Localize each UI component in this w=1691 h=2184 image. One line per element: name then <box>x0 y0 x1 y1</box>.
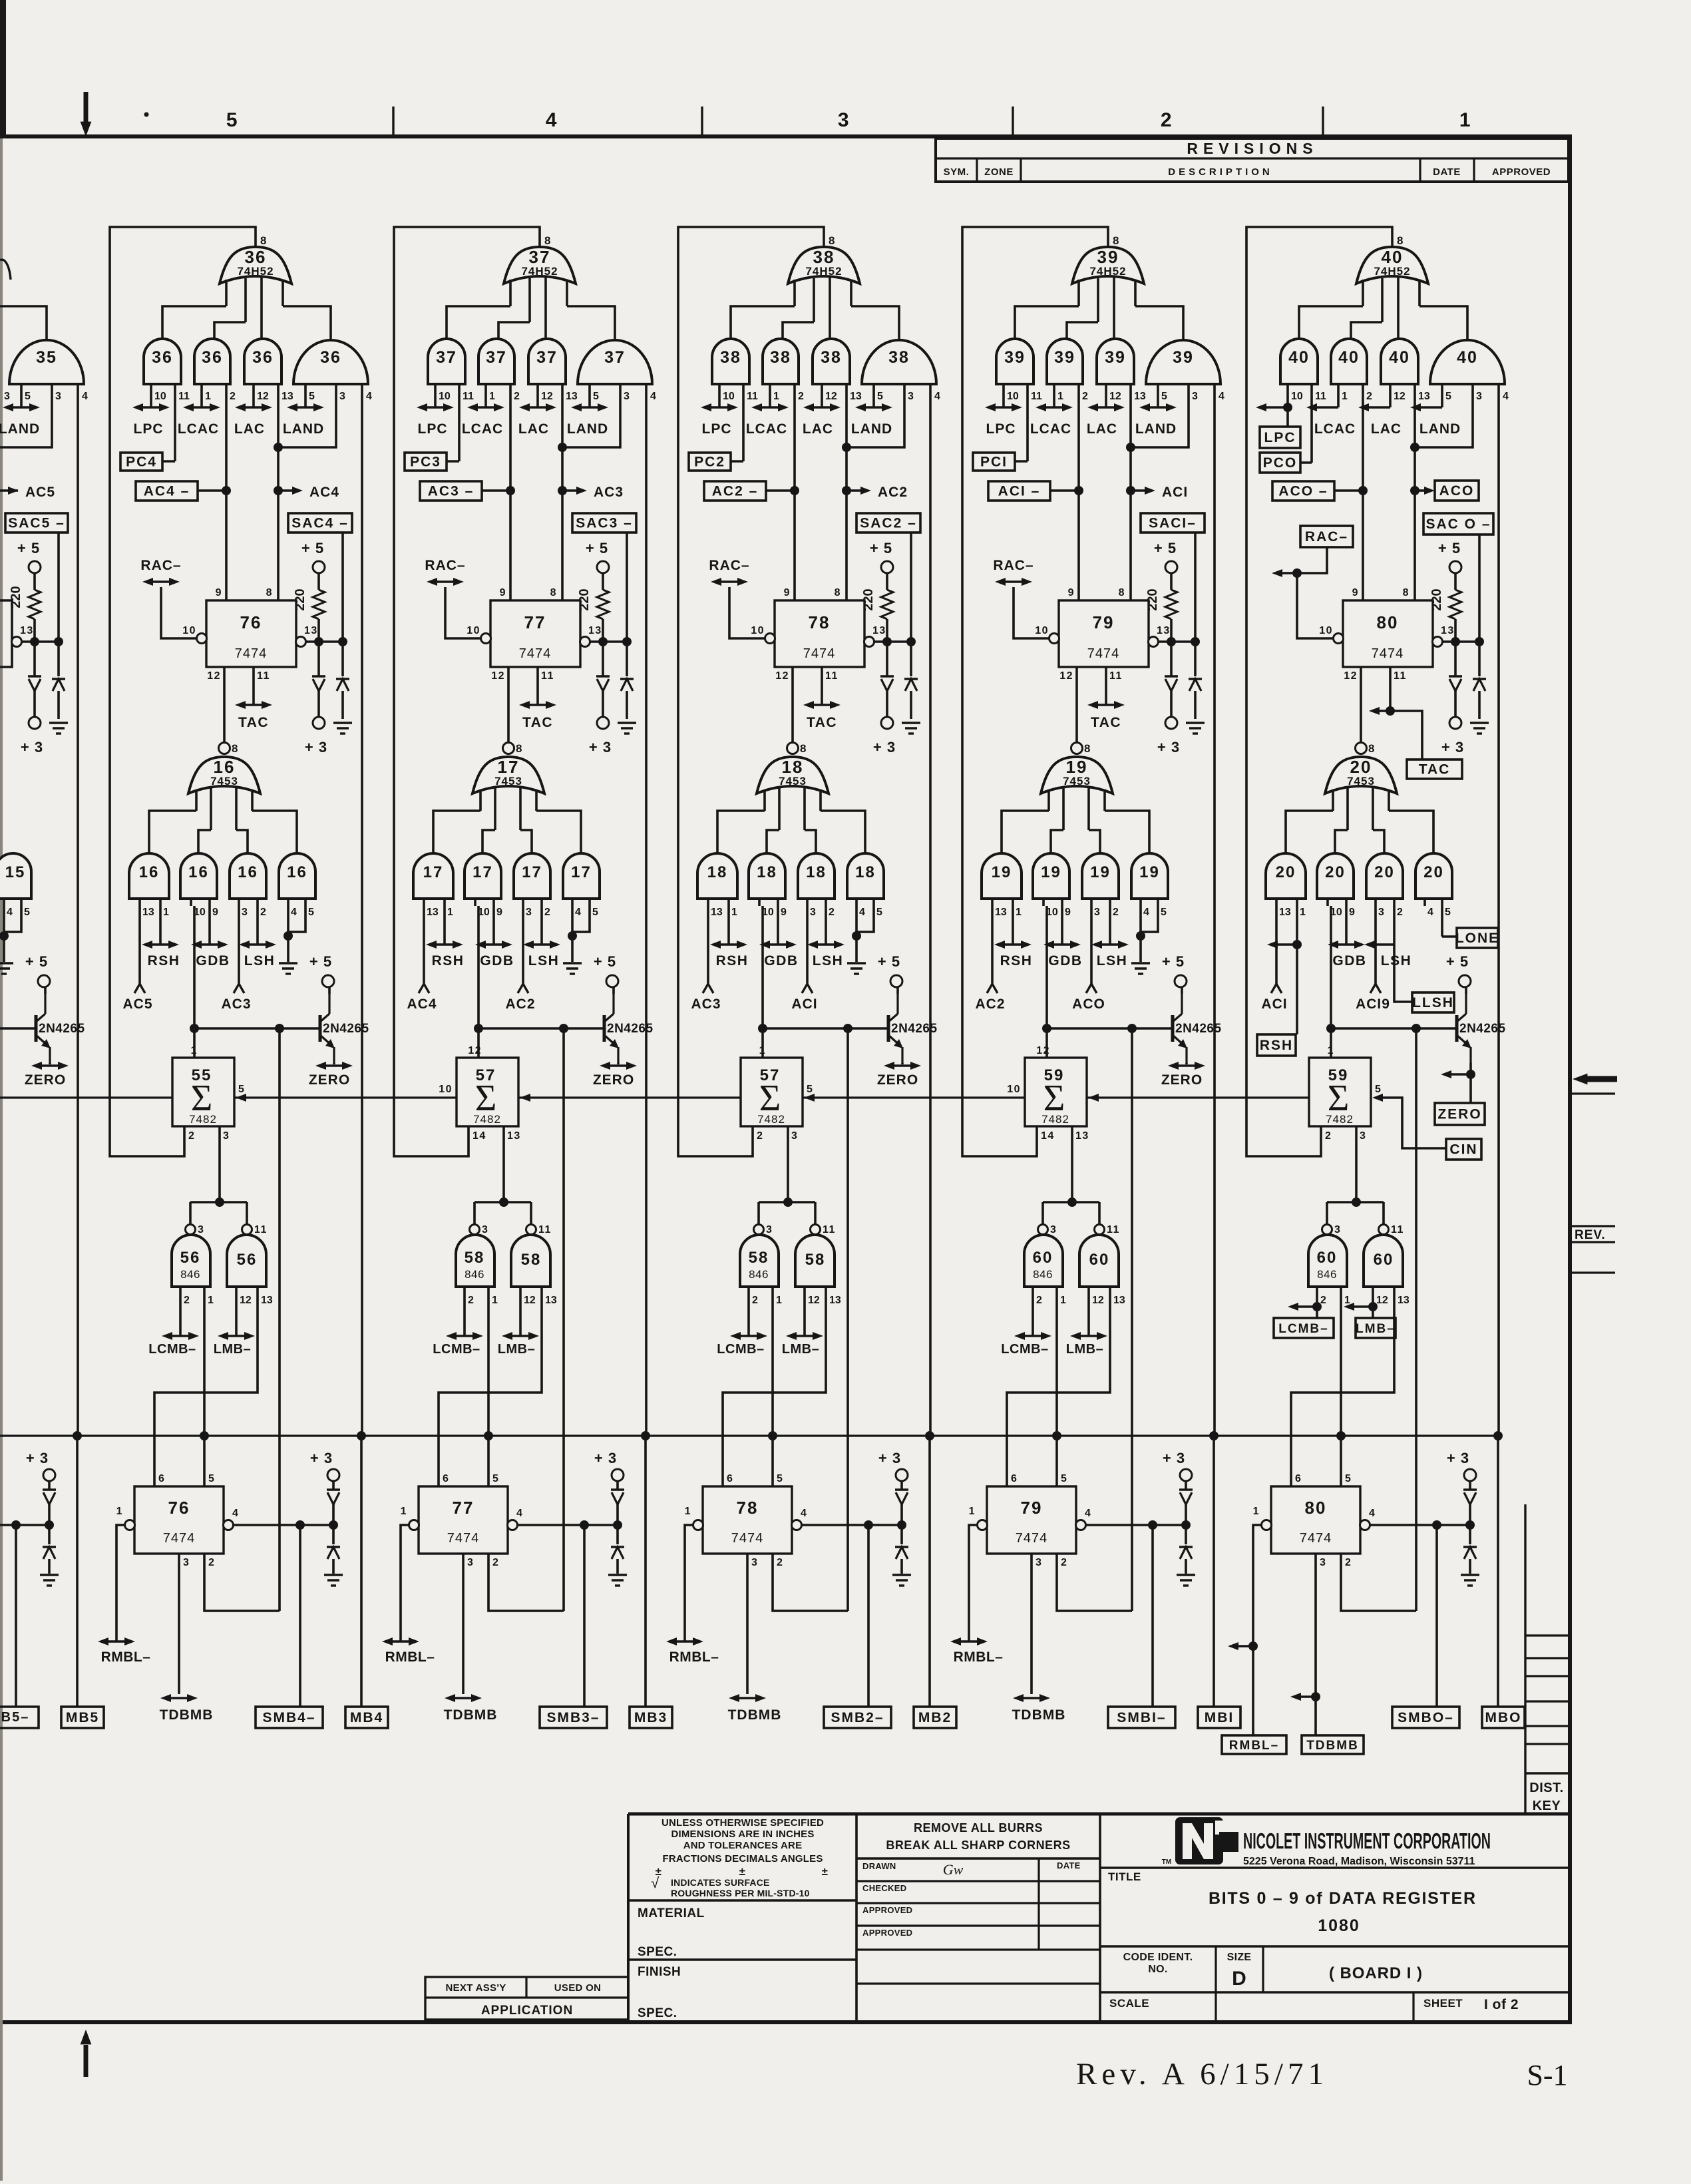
svg-text:+ 3: + 3 <box>26 1450 49 1466</box>
svg-text:5: 5 <box>876 907 882 918</box>
svg-text:11: 11 <box>257 670 270 682</box>
svg-text:11: 11 <box>1107 1224 1120 1235</box>
svg-text:8: 8 <box>1119 587 1125 598</box>
svg-text:10: 10 <box>1291 391 1303 402</box>
svg-text:3: 3 <box>624 391 630 402</box>
svg-text:AC2 –: AC2 – <box>712 484 759 499</box>
svg-text:9: 9 <box>1349 907 1355 918</box>
svg-text:16: 16 <box>214 757 236 777</box>
svg-text:3: 3 <box>526 907 532 918</box>
svg-text:11: 11 <box>1391 1224 1404 1235</box>
svg-text:36: 36 <box>252 348 274 367</box>
svg-text:AC2: AC2 <box>505 996 535 1012</box>
svg-text:5: 5 <box>238 1084 245 1095</box>
svg-text:4: 4 <box>546 109 558 131</box>
svg-text:7474: 7474 <box>803 646 836 661</box>
svg-text:SAC2 –: SAC2 – <box>860 516 917 531</box>
svg-text:16: 16 <box>139 863 160 881</box>
svg-text:6: 6 <box>727 1473 733 1484</box>
svg-text:+ 5: + 5 <box>870 540 892 556</box>
svg-text:6: 6 <box>443 1473 449 1484</box>
svg-text:4: 4 <box>291 907 297 918</box>
svg-text:5: 5 <box>308 907 314 918</box>
svg-text:2: 2 <box>468 1295 474 1306</box>
svg-text:5: 5 <box>1061 1473 1067 1484</box>
svg-text:56: 56 <box>237 1251 258 1269</box>
svg-text:LAC: LAC <box>234 421 265 437</box>
svg-text:MB4: MB4 <box>350 1710 383 1725</box>
svg-text:5: 5 <box>1445 907 1451 918</box>
svg-text:35: 35 <box>36 348 57 367</box>
svg-text:ZERO: ZERO <box>25 1072 66 1088</box>
svg-text:56: 56 <box>180 1249 201 1267</box>
svg-text:3: 3 <box>810 907 816 918</box>
svg-text:AND TOLERANCES ARE: AND TOLERANCES ARE <box>683 1840 803 1851</box>
svg-text:RSH: RSH <box>148 953 180 969</box>
svg-text:11: 11 <box>254 1224 268 1235</box>
svg-text:5: 5 <box>1161 391 1167 402</box>
svg-text:AC4: AC4 <box>407 996 437 1012</box>
svg-text:58: 58 <box>521 1251 542 1269</box>
svg-text:ZERO: ZERO <box>1437 1107 1481 1122</box>
svg-text:13: 13 <box>1113 1295 1125 1306</box>
svg-text:5: 5 <box>309 391 315 402</box>
svg-text:INDICATES SURFACE: INDICATES SURFACE <box>671 1877 770 1888</box>
svg-text:RAC–: RAC– <box>1305 529 1348 545</box>
svg-text:AC4: AC4 <box>309 485 339 500</box>
svg-text:RSH: RSH <box>432 953 465 969</box>
svg-text:17: 17 <box>472 863 493 881</box>
svg-text:36: 36 <box>152 348 173 367</box>
svg-text:4: 4 <box>650 391 656 402</box>
svg-text:3: 3 <box>198 1224 204 1235</box>
svg-text:846: 846 <box>465 1268 484 1281</box>
svg-text:2: 2 <box>230 391 236 402</box>
svg-text:ZONE: ZONE <box>984 166 1014 178</box>
svg-text:5: 5 <box>1345 1473 1352 1484</box>
svg-text:LAND: LAND <box>1135 421 1177 437</box>
svg-text:SMB2–: SMB2– <box>831 1710 884 1725</box>
svg-text:LSH: LSH <box>1381 953 1412 969</box>
svg-text:RSH: RSH <box>1000 953 1033 969</box>
svg-text:74H52: 74H52 <box>237 265 274 278</box>
svg-text:16: 16 <box>188 863 209 881</box>
svg-text:5: 5 <box>25 391 31 402</box>
svg-text:√: √ <box>651 1874 660 1891</box>
svg-text:1: 1 <box>191 1045 198 1056</box>
svg-text:DIST.: DIST. <box>1529 1781 1563 1795</box>
svg-text:4: 4 <box>1143 907 1149 918</box>
svg-text:58: 58 <box>805 1251 826 1269</box>
svg-text:2: 2 <box>1345 1557 1352 1568</box>
svg-text:9: 9 <box>500 587 506 598</box>
svg-text:12: 12 <box>1109 391 1121 402</box>
svg-text:11: 11 <box>541 670 554 682</box>
svg-text:SMBI–: SMBI– <box>1117 1710 1166 1725</box>
svg-text:LCAC: LCAC <box>1314 421 1356 437</box>
svg-text:+ 5: + 5 <box>309 953 332 970</box>
svg-text:9: 9 <box>496 907 502 918</box>
svg-text:2: 2 <box>544 907 550 918</box>
svg-text:4: 4 <box>934 391 940 402</box>
svg-text:9: 9 <box>1068 587 1075 598</box>
svg-text:7474: 7474 <box>519 646 552 661</box>
svg-text:10: 10 <box>1007 1084 1021 1095</box>
svg-text:9: 9 <box>784 587 791 598</box>
svg-text:±: ± <box>739 1865 747 1878</box>
svg-text:4: 4 <box>366 391 372 402</box>
svg-text:7474: 7474 <box>731 1531 764 1546</box>
svg-text:2: 2 <box>757 1130 763 1142</box>
svg-text:11: 11 <box>823 1224 836 1235</box>
svg-text:11: 11 <box>178 391 190 402</box>
svg-text:7453: 7453 <box>210 775 238 787</box>
svg-text:GDB: GDB <box>764 953 798 969</box>
svg-text:846: 846 <box>1033 1268 1053 1281</box>
svg-text:+ 5: + 5 <box>1438 540 1461 556</box>
svg-text:4: 4 <box>1427 907 1433 918</box>
svg-text:8: 8 <box>1084 742 1091 755</box>
svg-text:13: 13 <box>1441 625 1455 636</box>
svg-text:5: 5 <box>877 391 883 402</box>
svg-text:2: 2 <box>1366 391 1372 402</box>
svg-text:ACI: ACI <box>1261 996 1287 1012</box>
svg-text:SMB4–: SMB4– <box>262 1710 315 1725</box>
svg-text:TDBMB: TDBMB <box>1012 1707 1066 1723</box>
svg-text:PCI: PCI <box>980 455 1008 470</box>
svg-text:ZERO: ZERO <box>877 1072 918 1088</box>
svg-text:79: 79 <box>1021 1498 1043 1518</box>
svg-text:8: 8 <box>835 587 841 598</box>
svg-text:RAC–: RAC– <box>709 558 749 573</box>
svg-text:LLSH: LLSH <box>1412 995 1454 1010</box>
svg-text:SIZE: SIZE <box>1227 1952 1252 1963</box>
svg-text:TDBMB: TDBMB <box>444 1707 498 1723</box>
svg-text:13: 13 <box>1279 907 1291 918</box>
svg-text:+ 5: + 5 <box>878 953 900 970</box>
svg-text:3: 3 <box>467 1557 474 1568</box>
svg-text:5: 5 <box>492 1473 499 1484</box>
svg-text:3: 3 <box>55 391 61 402</box>
svg-text:+ 3: + 3 <box>594 1450 617 1466</box>
svg-text:SAC O –: SAC O – <box>1425 517 1491 532</box>
svg-text:+ 5: + 5 <box>586 540 608 556</box>
svg-text:13: 13 <box>1157 625 1171 636</box>
svg-text:13: 13 <box>427 907 439 918</box>
svg-text:13: 13 <box>1418 391 1430 402</box>
svg-text:5: 5 <box>777 1473 783 1484</box>
svg-text:1: 1 <box>1300 907 1306 918</box>
svg-text:TITLE: TITLE <box>1108 1870 1141 1883</box>
svg-text:13: 13 <box>1398 1295 1409 1306</box>
svg-text:74H52: 74H52 <box>521 265 558 278</box>
svg-text:77: 77 <box>453 1498 474 1518</box>
svg-text:I of 2: I of 2 <box>1484 1997 1519 2012</box>
svg-text:RAC–: RAC– <box>140 558 181 573</box>
svg-text:3: 3 <box>766 1224 773 1235</box>
svg-text:7482: 7482 <box>189 1113 217 1126</box>
svg-text:13: 13 <box>995 907 1007 918</box>
svg-text:CIN: CIN <box>1449 1142 1477 1158</box>
svg-text:19: 19 <box>1041 863 1061 881</box>
svg-text:+ 3: + 3 <box>21 739 43 756</box>
svg-text:DESCRIPTION: DESCRIPTION <box>1168 166 1273 178</box>
svg-text:1: 1 <box>773 391 779 402</box>
svg-text:CHECKED: CHECKED <box>862 1883 906 1893</box>
svg-text:4: 4 <box>1085 1508 1091 1519</box>
svg-text:20: 20 <box>1325 863 1346 881</box>
svg-text:13: 13 <box>1134 391 1146 402</box>
svg-text:37: 37 <box>604 348 626 367</box>
svg-text:4: 4 <box>232 1508 239 1519</box>
svg-text:PC3: PC3 <box>410 455 441 470</box>
svg-text:ACI: ACI <box>1162 485 1188 500</box>
svg-text:TAC: TAC <box>807 715 837 730</box>
svg-text:3: 3 <box>1094 907 1100 918</box>
svg-text:40: 40 <box>1338 348 1360 367</box>
svg-text:RSH: RSH <box>1260 1038 1293 1053</box>
svg-text:MBI: MBI <box>1205 1710 1234 1725</box>
svg-text:RMBL–: RMBL– <box>101 1649 151 1665</box>
svg-text:4: 4 <box>1219 391 1224 402</box>
svg-text:7474: 7474 <box>447 1531 480 1546</box>
svg-text:1: 1 <box>1016 907 1022 918</box>
svg-text:APPLICATION: APPLICATION <box>481 2004 573 2018</box>
svg-text:LCAC: LCAC <box>746 421 787 437</box>
svg-text:2: 2 <box>208 1557 215 1568</box>
svg-text:+ 5: + 5 <box>301 540 324 556</box>
svg-text:39: 39 <box>1105 348 1126 367</box>
svg-text:2: 2 <box>1113 907 1119 918</box>
svg-text:LMB–: LMB– <box>214 1342 251 1357</box>
svg-text:UNLESS OTHERWISE SPECIFIED: UNLESS OTHERWISE SPECIFIED <box>661 1817 824 1829</box>
svg-text:D: D <box>1232 1968 1246 1990</box>
svg-text:846: 846 <box>1317 1268 1337 1281</box>
svg-text:NICOLET INSTRUMENT CORPORATION: NICOLET INSTRUMENT CORPORATION <box>1243 1829 1491 1853</box>
svg-text:ZERO: ZERO <box>1161 1072 1203 1088</box>
svg-text:13: 13 <box>20 625 34 636</box>
svg-text:PC2: PC2 <box>694 455 725 470</box>
svg-text:8: 8 <box>550 587 557 598</box>
svg-text:1: 1 <box>1253 1506 1260 1517</box>
svg-text:+ 3: + 3 <box>305 739 327 756</box>
svg-text:AC2: AC2 <box>878 485 908 500</box>
svg-text:19: 19 <box>1066 757 1088 777</box>
svg-text:8: 8 <box>800 742 807 755</box>
svg-text:1: 1 <box>1060 1295 1066 1306</box>
svg-text:17: 17 <box>571 863 592 881</box>
svg-text:SHEET: SHEET <box>1423 1997 1463 2010</box>
svg-text:AC2: AC2 <box>975 996 1005 1012</box>
svg-text:+ 3: + 3 <box>310 1450 333 1466</box>
svg-text:2: 2 <box>1061 1557 1067 1568</box>
svg-text:38: 38 <box>720 348 741 367</box>
svg-text:LAND: LAND <box>567 421 608 437</box>
svg-text:1: 1 <box>163 907 169 918</box>
svg-text:2: 2 <box>1397 907 1403 918</box>
svg-text:+ 5: + 5 <box>594 953 616 970</box>
svg-text:19: 19 <box>992 863 1012 881</box>
svg-text:LAC: LAC <box>518 421 549 437</box>
svg-text:+ 5: + 5 <box>25 953 48 970</box>
svg-text:±: ± <box>822 1865 829 1878</box>
svg-text:3: 3 <box>339 391 345 402</box>
svg-text:RMBL–: RMBL– <box>385 1649 435 1665</box>
svg-text:14: 14 <box>1041 1130 1055 1142</box>
svg-text:TAC: TAC <box>238 715 269 730</box>
svg-text:12: 12 <box>207 670 221 682</box>
svg-text:ACO: ACO <box>1439 483 1475 499</box>
svg-text:LCAC: LCAC <box>1030 421 1071 437</box>
svg-text:SACI–: SACI– <box>1149 516 1197 531</box>
svg-text:KEY: KEY <box>1533 1799 1561 1813</box>
svg-text:+ 3: + 3 <box>873 739 896 756</box>
svg-text:LAC: LAC <box>1371 421 1402 437</box>
svg-text:5: 5 <box>1161 907 1167 918</box>
svg-text:7453: 7453 <box>1347 775 1375 787</box>
svg-text:37: 37 <box>529 247 551 267</box>
svg-text:3: 3 <box>1050 1224 1057 1235</box>
svg-text:12: 12 <box>1344 670 1358 682</box>
svg-text:RSH: RSH <box>716 953 749 969</box>
svg-text:17: 17 <box>498 757 520 777</box>
svg-text:TDBMB: TDBMB <box>728 1707 782 1723</box>
svg-text:TM: TM <box>1162 1858 1171 1866</box>
svg-text:ROUGHNESS PER MIL-STD-10: ROUGHNESS PER MIL-STD-10 <box>671 1888 810 1898</box>
svg-text:39: 39 <box>1097 247 1119 267</box>
svg-text:10: 10 <box>182 625 196 636</box>
svg-text:60: 60 <box>1317 1249 1338 1267</box>
svg-text:GDB: GDB <box>1332 953 1366 969</box>
svg-text:BITS 0 – 9 of DATA REGIST: BITS 0 – 9 of DATA REGISTER <box>1209 1889 1475 1908</box>
svg-text:LPC: LPC <box>702 421 732 437</box>
svg-text:TAC: TAC <box>522 715 553 730</box>
svg-text:8: 8 <box>1403 587 1409 598</box>
svg-text:13: 13 <box>545 1295 557 1306</box>
svg-text:AC4 –: AC4 – <box>144 484 190 499</box>
svg-text:13: 13 <box>507 1130 521 1142</box>
svg-text:SPEC.: SPEC. <box>638 2006 677 2020</box>
svg-text:LCAC: LCAC <box>462 421 503 437</box>
svg-text:58: 58 <box>465 1249 485 1267</box>
svg-text:MB3: MB3 <box>634 1710 667 1725</box>
svg-text:36: 36 <box>245 247 267 267</box>
svg-text:AC3 –: AC3 – <box>428 484 474 499</box>
svg-text:+ 3: + 3 <box>589 739 612 756</box>
svg-text:12: 12 <box>491 670 505 682</box>
svg-text:2: 2 <box>798 391 804 402</box>
svg-text:8: 8 <box>544 234 550 247</box>
svg-text:9: 9 <box>212 907 218 918</box>
svg-text:LPC: LPC <box>418 421 448 437</box>
svg-text:LAND: LAND <box>283 421 324 437</box>
svg-text:LAC: LAC <box>1087 421 1117 437</box>
svg-text:DIMENSIONS ARE IN INCHES: DIMENSIONS ARE IN INCHES <box>671 1829 814 1840</box>
svg-text:12: 12 <box>1036 1045 1050 1056</box>
svg-text:LMB–: LMB– <box>1356 1322 1396 1336</box>
svg-text:+ 5: + 5 <box>1446 953 1469 970</box>
svg-text:MB2: MB2 <box>918 1710 952 1725</box>
svg-text:+ 5: + 5 <box>1162 953 1185 970</box>
svg-text:LCAC: LCAC <box>178 421 219 437</box>
svg-text:18: 18 <box>707 863 728 881</box>
svg-text:58: 58 <box>749 1249 769 1267</box>
svg-text:12: 12 <box>541 391 553 402</box>
svg-text:11: 11 <box>1315 391 1326 402</box>
svg-text:LAND: LAND <box>1419 421 1461 437</box>
svg-text:SAC4 –: SAC4 – <box>291 516 349 531</box>
svg-text:11: 11 <box>1394 670 1407 682</box>
svg-text:LAND: LAND <box>0 421 40 437</box>
svg-text:+ 3: + 3 <box>1441 739 1464 756</box>
svg-text:S-1: S-1 <box>1527 2059 1567 2091</box>
svg-text:8: 8 <box>260 234 266 247</box>
svg-text:SPEC.: SPEC. <box>638 1945 677 1959</box>
svg-text:1: 1 <box>1057 391 1063 402</box>
svg-text:7474: 7474 <box>1016 1531 1048 1546</box>
svg-text:1: 1 <box>492 1295 498 1306</box>
svg-text:4: 4 <box>1503 391 1509 402</box>
svg-text:8: 8 <box>1368 742 1376 755</box>
svg-text:80: 80 <box>1377 612 1399 632</box>
svg-text:FRACTIONS DECIMALS ANGLES: FRACTIONS DECIMALS ANGLES <box>662 1853 823 1864</box>
svg-text:7482: 7482 <box>757 1113 785 1126</box>
svg-text:4: 4 <box>1369 1508 1376 1519</box>
svg-text:LCMB–: LCMB– <box>717 1342 764 1357</box>
svg-text:GDB: GDB <box>1048 953 1082 969</box>
svg-text:7474: 7474 <box>1087 646 1120 661</box>
svg-text:1080: 1080 <box>1318 1916 1360 1935</box>
svg-text:LMB–: LMB– <box>498 1342 535 1357</box>
svg-text:AC3: AC3 <box>594 485 624 500</box>
svg-text:SMBO–: SMBO– <box>1398 1710 1454 1725</box>
svg-text:+ 3: + 3 <box>1157 739 1180 756</box>
svg-text:7482: 7482 <box>1326 1113 1354 1126</box>
svg-text:3: 3 <box>1360 1130 1366 1142</box>
svg-text:BREAK ALL SHARP CORNERS: BREAK ALL SHARP CORNERS <box>886 1839 1070 1852</box>
svg-text:MB5: MB5 <box>66 1710 99 1725</box>
svg-text:12: 12 <box>775 670 789 682</box>
svg-text:1: 1 <box>1344 1295 1350 1306</box>
svg-text:13: 13 <box>142 907 154 918</box>
svg-text:13: 13 <box>829 1295 841 1306</box>
svg-text:5225 Verona Road, Madison, Wis: 5225 Verona Road, Madison, Wisconsin 537… <box>1243 1856 1475 1867</box>
svg-text:3: 3 <box>791 1130 798 1142</box>
svg-text:18: 18 <box>806 863 827 881</box>
svg-text:LPC: LPC <box>986 421 1016 437</box>
svg-text:8: 8 <box>829 234 835 247</box>
svg-text:2: 2 <box>1325 1130 1332 1142</box>
svg-text:7482: 7482 <box>1041 1113 1069 1126</box>
svg-text:5: 5 <box>1445 391 1451 402</box>
svg-text:38: 38 <box>821 348 842 367</box>
svg-text:11: 11 <box>1031 391 1042 402</box>
svg-text:1: 1 <box>776 1295 782 1306</box>
svg-text:REV.: REV. <box>1575 1228 1606 1242</box>
svg-text:2: 2 <box>514 391 520 402</box>
svg-text:10: 10 <box>1035 625 1049 636</box>
svg-text:7482: 7482 <box>473 1113 501 1126</box>
svg-text:ACI: ACI <box>791 996 817 1012</box>
svg-text:10: 10 <box>1319 625 1333 636</box>
svg-text:2: 2 <box>752 1295 758 1306</box>
svg-text:1: 1 <box>1328 1045 1334 1056</box>
svg-text:1: 1 <box>1342 391 1348 402</box>
svg-text:4: 4 <box>801 1508 807 1519</box>
svg-text:74H52: 74H52 <box>1089 265 1126 278</box>
svg-text:15: 15 <box>5 863 26 881</box>
svg-text:19: 19 <box>1090 863 1111 881</box>
